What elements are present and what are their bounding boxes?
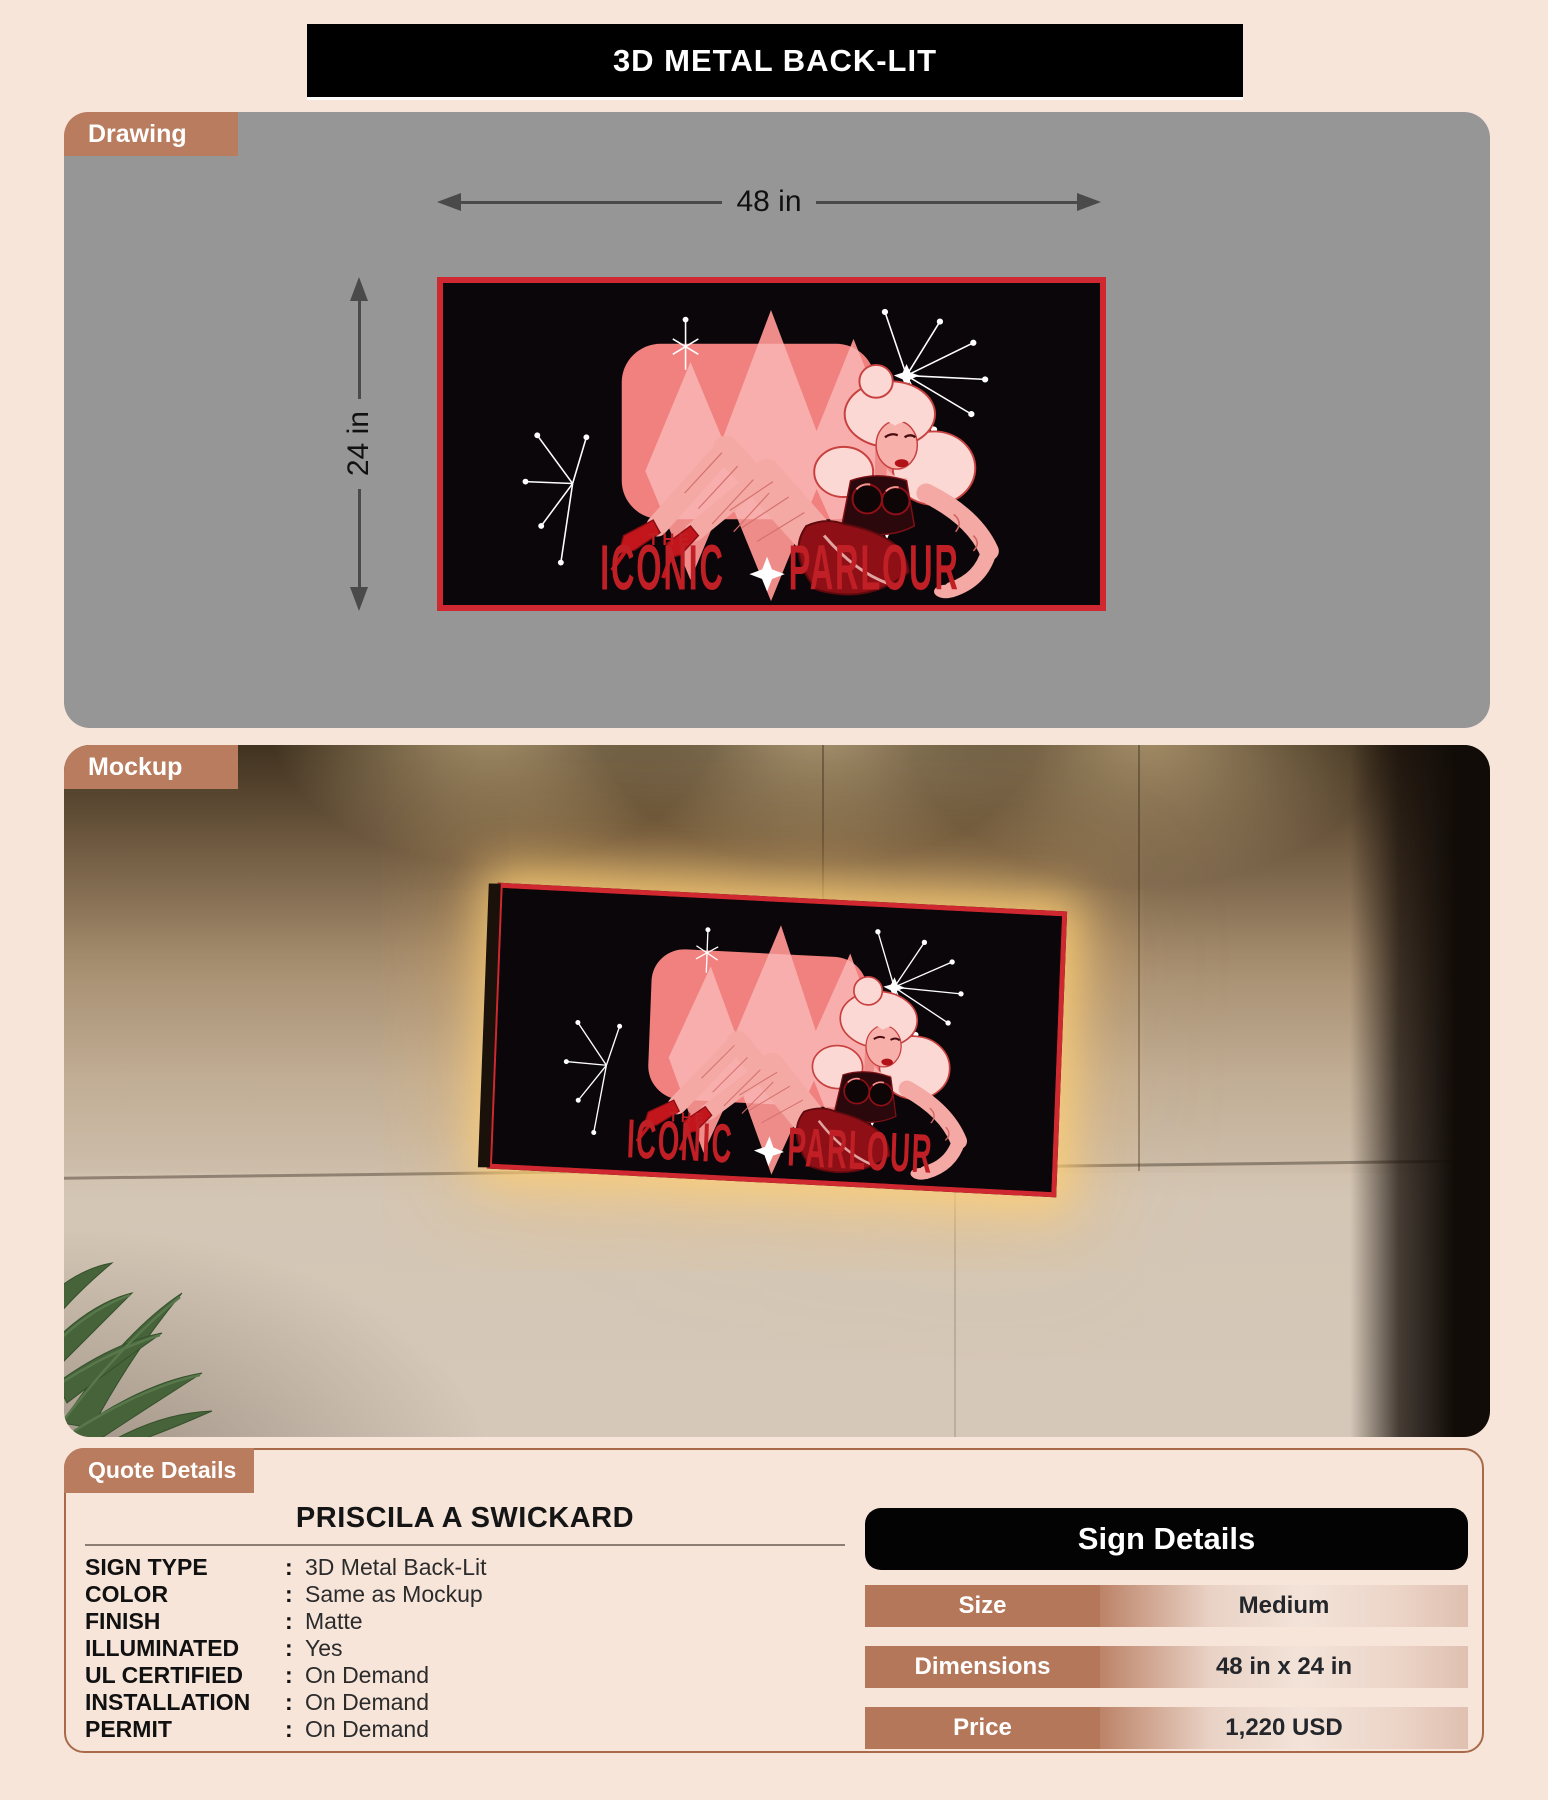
arrow-left-icon xyxy=(437,193,461,211)
quote-field-row: ILLUMINATED : Yes xyxy=(85,1635,865,1662)
arrow-up-icon xyxy=(350,277,368,301)
sign-drawing xyxy=(437,277,1106,611)
wall-seam xyxy=(954,1173,956,1437)
customer-name: PRISCILA A SWICKARD xyxy=(85,1502,845,1535)
quote-field-row: INSTALLATION : On Demand xyxy=(85,1689,865,1716)
quote-details-tab-label: Quote Details xyxy=(88,1457,236,1484)
quote-details-tab: Quote Details xyxy=(64,1448,254,1493)
drawing-panel: Drawing 48 in 24 in xyxy=(64,112,1490,728)
height-dimension: 24 in xyxy=(339,277,379,611)
width-dimension: 48 in xyxy=(437,182,1101,222)
width-dimension-label: 48 in xyxy=(722,185,815,219)
quote-field-row: COLOR : Same as Mockup xyxy=(85,1581,865,1608)
wall-dark-column xyxy=(1350,745,1490,1437)
drawing-tab: Drawing xyxy=(64,112,238,156)
plant-leaves xyxy=(64,1173,352,1437)
arrow-down-icon xyxy=(350,587,368,611)
page-title: 3D METAL BACK-LIT xyxy=(307,24,1243,97)
quote-field-row: UL CERTIFIED : On Demand xyxy=(85,1662,865,1689)
quote-fields-list: SIGN TYPE : 3D Metal Back-Lit COLOR : Sa… xyxy=(85,1554,865,1743)
sign-details-row-dimensions: Dimensions 48 in x 24 in xyxy=(865,1646,1468,1688)
quote-field-row: FINISH : Matte xyxy=(85,1608,865,1635)
height-dimension-label: 24 in xyxy=(342,399,376,488)
mockup-tab: Mockup xyxy=(64,745,238,789)
quote-field-row: SIGN TYPE : 3D Metal Back-Lit xyxy=(85,1554,865,1581)
sign-details-row-size: Size Medium xyxy=(865,1585,1468,1627)
quote-field-row: PERMIT : On Demand xyxy=(85,1716,865,1743)
mockup-panel: Mockup xyxy=(64,745,1490,1437)
sign-details-header: Sign Details xyxy=(865,1508,1468,1570)
drawing-tab-label: Drawing xyxy=(88,120,187,149)
sign-details-row-price: Price 1,220 USD xyxy=(865,1707,1468,1749)
mockup-tab-label: Mockup xyxy=(88,753,182,782)
divider xyxy=(85,1544,845,1546)
wall-seam xyxy=(1138,745,1140,1171)
sign-mockup xyxy=(487,883,1067,1198)
arrow-right-icon xyxy=(1077,193,1101,211)
